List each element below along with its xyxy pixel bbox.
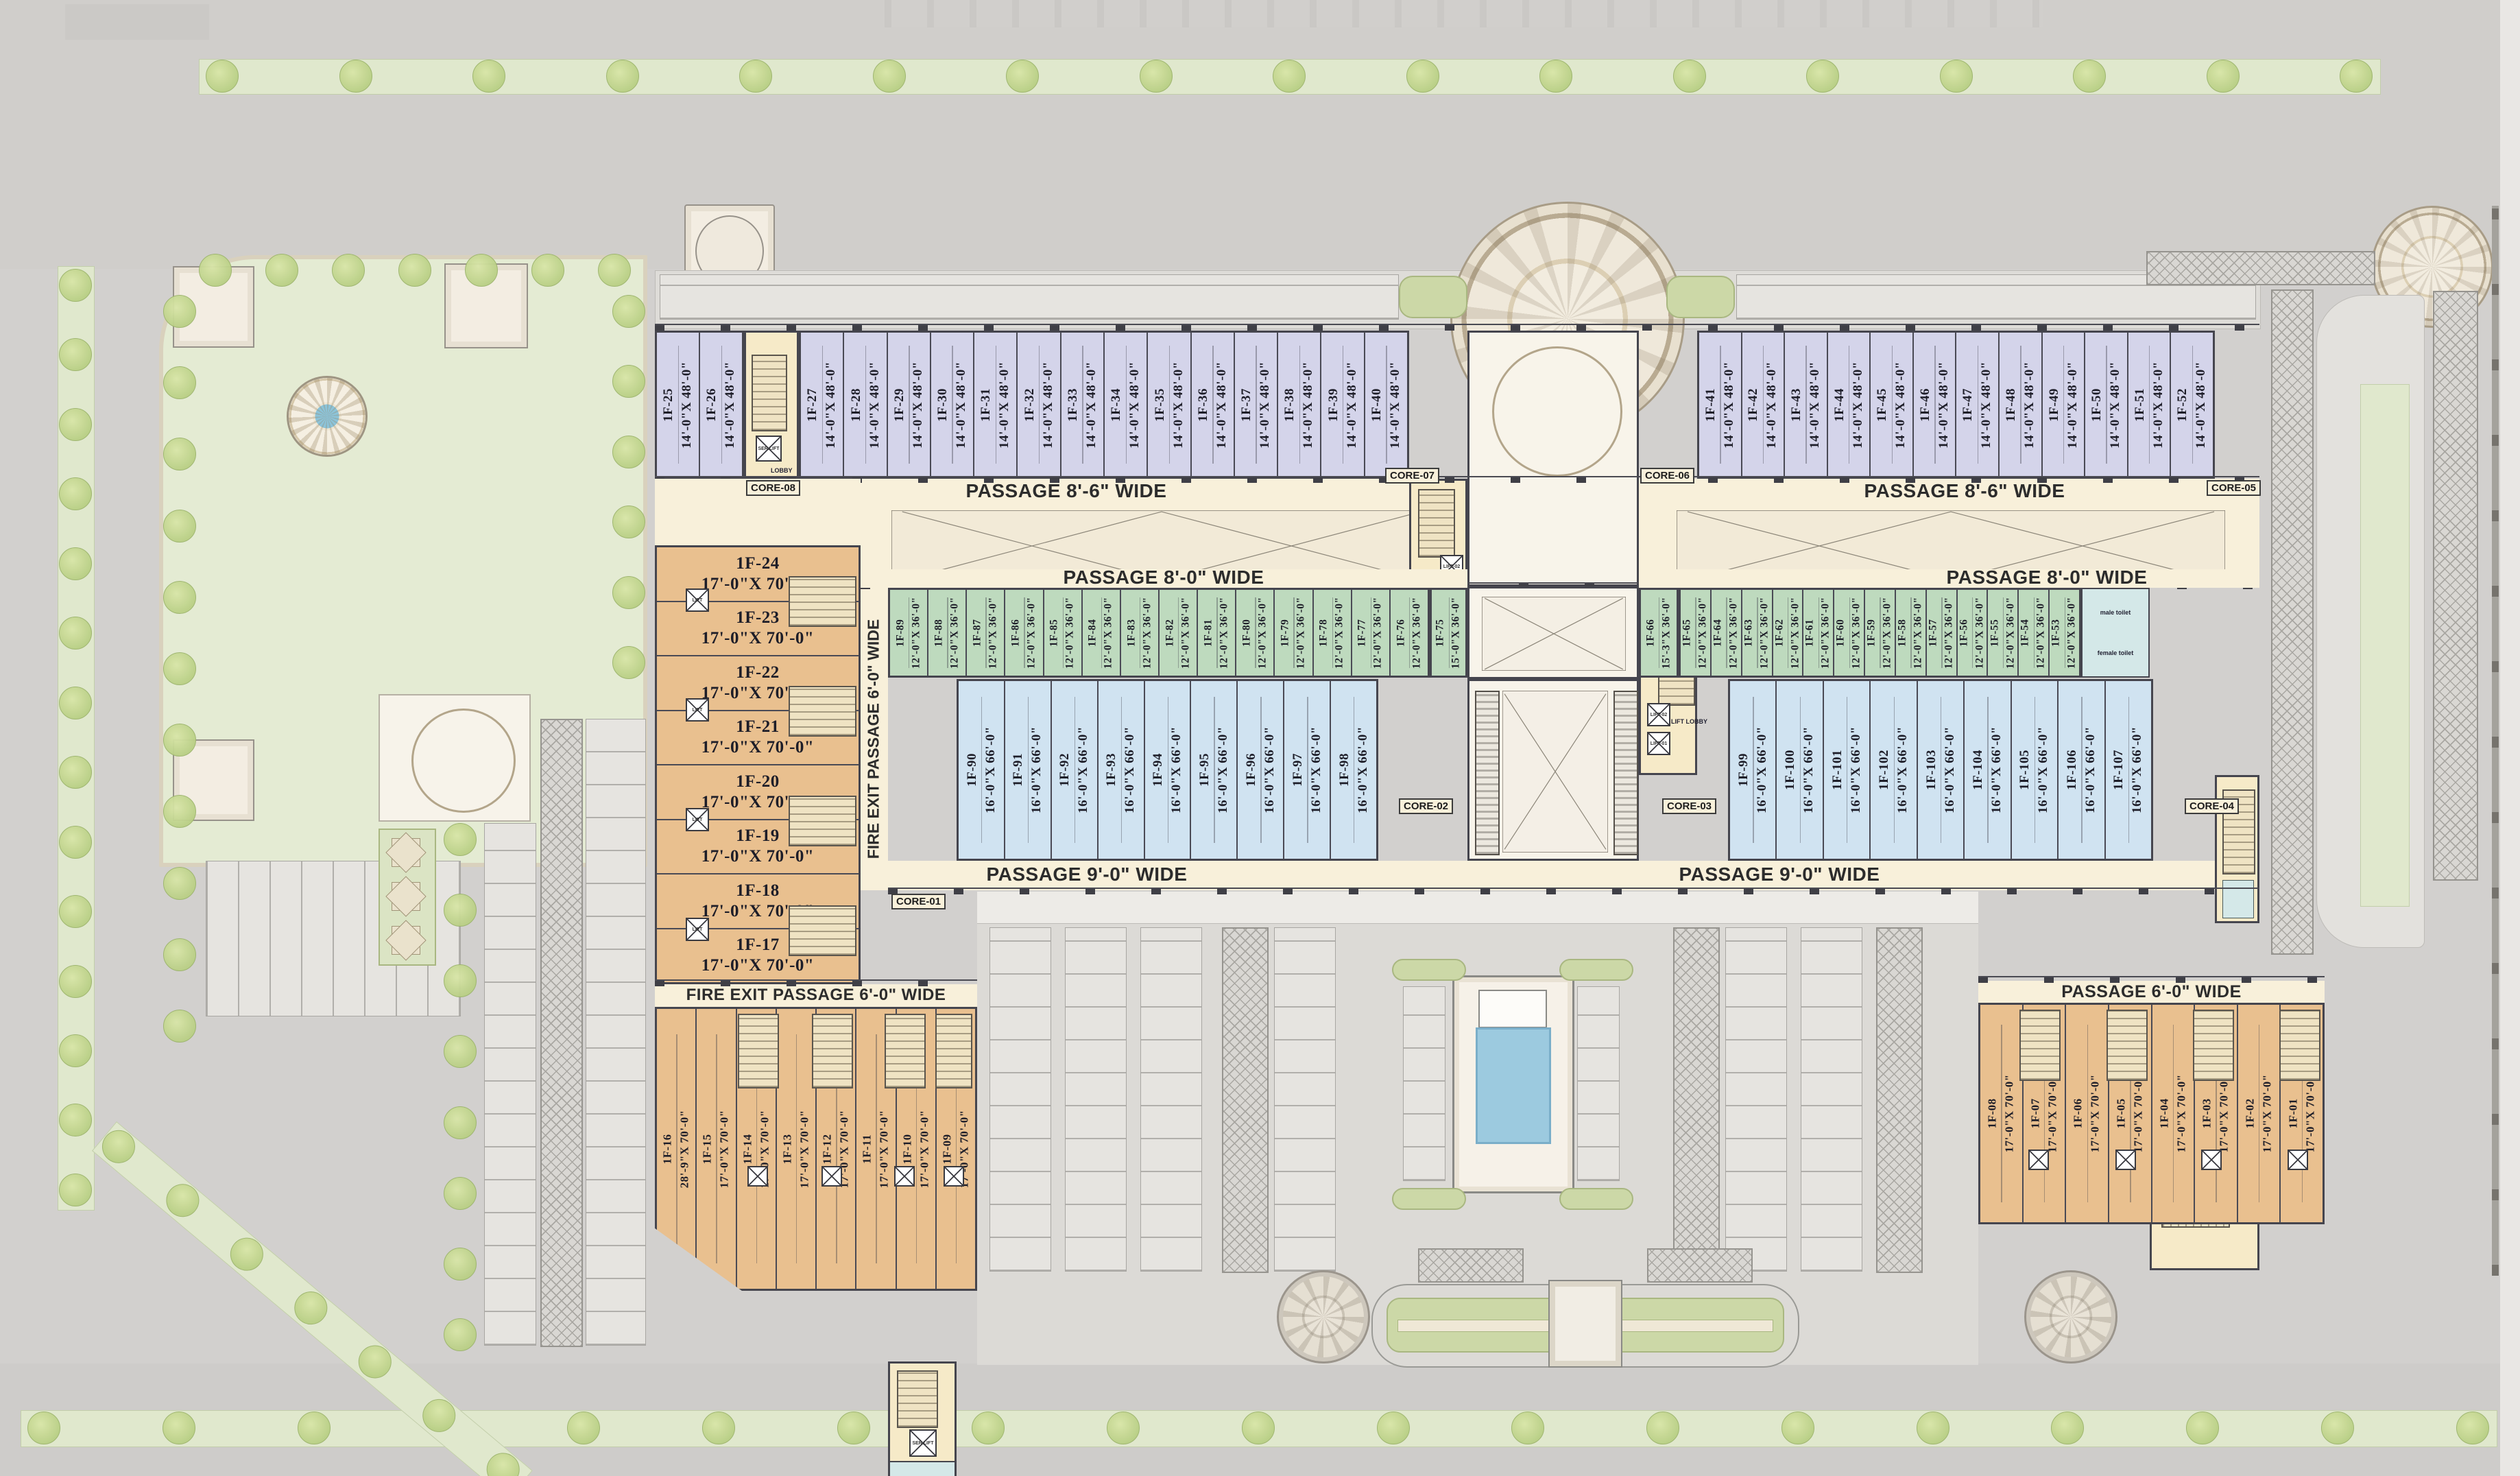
tree-icon [163, 510, 196, 543]
escalator-icon [1613, 691, 1638, 855]
central-void-lower [1467, 679, 1639, 861]
unit-1F-76: 1F-7612'-0"X 36'-0" [1389, 590, 1428, 676]
unit-1F-34: 1F-3414'-0"X 48'-0" [1103, 333, 1147, 477]
unit-1F-57: 1F-5712'-0"X 36'-0" [1925, 590, 1956, 676]
tree-row-north [206, 60, 2373, 92]
unit-1F-02: 1F-0217'-0"X 70'-0" [2237, 1005, 2280, 1222]
offsite-block [65, 4, 209, 40]
tree-icon [2073, 60, 2106, 93]
unit-1F-50: 1F-5014'-0"X 48'-0" [2084, 333, 2127, 477]
tree-icon [1940, 60, 1973, 93]
north-parking-faint [885, 0, 2043, 27]
parking-stalls-west [484, 823, 536, 1346]
unit-1F-100: 1F-10016'-0"X 66'-0" [1775, 681, 1822, 859]
passage-label: PASSAGE 8'-0" WIDE [1841, 568, 2253, 587]
wall-columns [655, 324, 2259, 331]
unit-1F-64: 1F-6412'-0"X 36'-0" [1710, 590, 1741, 676]
park-fountain [287, 376, 368, 457]
green-median [1392, 959, 1466, 981]
unit-1F-79: 1F-7912'-0"X 36'-0" [1273, 590, 1312, 676]
unit-1F-101: 1F-10116'-0"X 66'-0" [1823, 681, 1869, 859]
lobby-label: LOBBY [771, 467, 793, 474]
parking-stalls-plaza [1577, 986, 1620, 1181]
unit-1F-40: 1F-4014'-0"X 48'-0" [1364, 333, 1407, 477]
unit-1F-15: 1F-1517'-0"X 70'-0" [695, 1009, 735, 1289]
lift-icon: LIFT [686, 918, 709, 941]
unit-1F-25: 1F-2514'-0"X 48'-0" [657, 333, 699, 477]
site-east-margin [2500, 0, 2520, 1476]
parking-screen-east [2433, 291, 2478, 881]
roundabout-fountain [411, 709, 516, 813]
tree-icon [1406, 60, 1439, 93]
unit-1F-27: 1F-2714'-0"X 48'-0" [801, 333, 843, 477]
tree-icon [163, 1412, 195, 1444]
unit-1F-44: 1F-4414'-0"X 48'-0" [1827, 333, 1870, 477]
unit-1F-33: 1F-3314'-0"X 48'-0" [1060, 333, 1103, 477]
tree-icon [224, 1231, 270, 1278]
unit-1F-86: 1F-8612'-0"X 36'-0" [1004, 590, 1042, 676]
tree-icon [531, 254, 564, 287]
unit-1F-88: 1F-8812'-0"X 36'-0" [927, 590, 965, 676]
tree-icon [1673, 60, 1706, 93]
stair-icon [885, 1014, 926, 1088]
tree-icon [163, 295, 196, 328]
tree-icon [163, 795, 196, 828]
passage-label: PASSAGE 9'-0" WIDE [1574, 861, 1985, 888]
stage [1478, 990, 1547, 1028]
unit-1F-92: 1F-9216'-0"X 66'-0" [1051, 681, 1097, 859]
unit-1F-48: 1F-4814'-0"X 48'-0" [1998, 333, 2041, 477]
parking-stalls-court [1725, 927, 1787, 1272]
tree-icon [398, 254, 431, 287]
tree-icon [612, 295, 645, 328]
escalator-icon [1475, 691, 1500, 855]
shop-strip-blue-west: 1F-9016'-0"X 66'-0"1F-9116'-0"X 66'-0"1F… [957, 679, 1378, 861]
tree-icon [27, 1412, 60, 1444]
stair-icon [789, 796, 856, 846]
road-north [0, 0, 2520, 269]
parking-screen-northeast [2146, 251, 2375, 285]
shop-strip-green-66: 1F-6615'-3"X 36'-0" [1639, 588, 1679, 678]
fire-passage-vertical: FIRE EXIT PASSAGE 6'-0" WIDE [859, 588, 888, 890]
unit-1F-78: 1F-7812'-0"X 36'-0" [1312, 590, 1351, 676]
tree-icon [444, 1248, 477, 1281]
wall-columns [888, 888, 2259, 894]
unit-1F-98: 1F-9816'-0"X 66'-0" [1330, 681, 1376, 859]
passage-label: PASSAGE 6'-0" WIDE [1978, 981, 2325, 1002]
unit-1F-29: 1F-2914'-0"X 48'-0" [887, 333, 930, 477]
toilet-block-east: male toilet female toilet [2081, 588, 2150, 678]
tree-icon [1107, 1412, 1140, 1444]
lift-icon: LIFT-01 [1647, 732, 1670, 755]
tree-icon [2321, 1412, 2354, 1444]
tree-icon [1781, 1412, 1814, 1444]
unit-1F-61: 1F-6112'-0"X 36'-0" [1802, 590, 1833, 676]
stair-icon [812, 1014, 853, 1088]
unit-1F-04: 1F-0417'-0"X 70'-0" [2151, 1005, 2194, 1222]
unit-1F-103: 1F-10316'-0"X 66'-0" [1917, 681, 1963, 859]
tree-icon [332, 254, 365, 287]
tree-icon [163, 652, 196, 685]
unit-1F-13: 1F-1317'-0"X 70'-0" [776, 1009, 815, 1289]
pool [1476, 1027, 1551, 1144]
skylight-truss [1502, 691, 1608, 853]
passage-label: PASSAGE 8'-0" WIDE [958, 568, 1369, 587]
entry-median-walk [1397, 1320, 1555, 1332]
lift-icon: LIFT-02 [1647, 703, 1670, 726]
tree-icon [163, 1010, 196, 1043]
ornament-medallion [2024, 1270, 2117, 1364]
tree-icon [298, 1412, 331, 1444]
green-median [1392, 1188, 1466, 1210]
unit-1F-37: 1F-3714'-0"X 48'-0" [1234, 333, 1277, 477]
tree-icon [612, 365, 645, 398]
lift-icon [894, 1166, 915, 1187]
lift-icon [2288, 1150, 2308, 1170]
unit-1F-81: 1F-8112'-0"X 36'-0" [1197, 590, 1235, 676]
toilet-block [2222, 880, 2254, 918]
atrium-fountain [1492, 346, 1622, 477]
unit-1F-94: 1F-9416'-0"X 66'-0" [1144, 681, 1190, 859]
unit-1F-52: 1F-5214'-0"X 48'-0" [2170, 333, 2213, 477]
parking-stalls-court [1140, 927, 1202, 1272]
unit-1F-38: 1F-3814'-0"X 48'-0" [1277, 333, 1320, 477]
unit-1F-35: 1F-3514'-0"X 48'-0" [1147, 333, 1190, 477]
unit-1F-102: 1F-10216'-0"X 66'-0" [1869, 681, 1916, 859]
unit-1F-77: 1F-7712'-0"X 36'-0" [1351, 590, 1389, 676]
shop-strip-green-west: 1F-8912'-0"X 36'-0"1F-8812'-0"X 36'-0"1F… [888, 588, 1430, 678]
unit-1F-28: 1F-2814'-0"X 48'-0" [843, 333, 886, 477]
service-lift-icon: SER.LIFT [909, 1429, 937, 1457]
unit-1F-30: 1F-3014'-0"X 48'-0" [930, 333, 973, 477]
tree-icon [59, 1034, 92, 1067]
tree-icon [163, 366, 196, 399]
tree-row-median [442, 823, 478, 1351]
tree-icon [1511, 1412, 1544, 1444]
passage-label: PASSAGE 9'-0" WIDE [881, 861, 1293, 888]
ornament-medallion [1277, 1270, 1370, 1364]
tree-icon [606, 60, 639, 93]
stair-icon [2019, 1010, 2061, 1081]
unit-1F-105: 1F-10516'-0"X 66'-0" [2011, 681, 2057, 859]
unit-1F-107: 1F-10716'-0"X 66'-0" [2104, 681, 2151, 859]
tree-icon [59, 826, 92, 859]
tree-icon [59, 1174, 92, 1206]
unit-1F-26: 1F-2614'-0"X 48'-0" [699, 333, 742, 477]
unit-1F-43: 1F-4314'-0"X 48'-0" [1784, 333, 1827, 477]
passage-label: PASSAGE 8'-6" WIDE [861, 480, 1272, 502]
unit-1F-45: 1F-4514'-0"X 48'-0" [1869, 333, 1912, 477]
entry-gate [1548, 1280, 1622, 1368]
stair-icon [752, 355, 787, 431]
tree-icon [59, 338, 92, 371]
tree-icon [288, 1285, 335, 1331]
tree-icon [1806, 60, 1839, 93]
stair-icon [738, 1014, 779, 1088]
unit-1F-56: 1F-5612'-0"X 36'-0" [1956, 590, 1987, 676]
unit-1F-41: 1F-4114'-0"X 48'-0" [1699, 333, 1741, 477]
tree-icon [444, 1318, 477, 1351]
unit-1F-47: 1F-4714'-0"X 48'-0" [1955, 333, 1998, 477]
unit-1F-65: 1F-6512'-0"X 36'-0" [1681, 590, 1710, 676]
tree-icon [265, 254, 298, 287]
tree-row-south [27, 1412, 2489, 1444]
passage-label: PASSAGE 8'-6" WIDE [1759, 480, 2170, 502]
shop-strip-green-east: 1F-6512'-0"X 36'-0"1F-6412'-0"X 36'-0"1F… [1679, 588, 2081, 678]
parking-stalls-plaza [1403, 986, 1445, 1181]
tree-icon [199, 254, 232, 287]
shop-strip-purple-b: 1F-2714'-0"X 48'-0"1F-2814'-0"X 48'-0"1F… [799, 331, 1409, 479]
unit-1F-90: 1F-9016'-0"X 66'-0" [959, 681, 1004, 859]
skylight-truss [1482, 597, 1626, 671]
tree-icon [702, 1412, 735, 1444]
tree-icon [163, 938, 196, 971]
lift-icon [2115, 1150, 2136, 1170]
unit-1F-08: 1F-0817'-0"X 70'-0" [1980, 1005, 2022, 1222]
tree-icon [2456, 1412, 2489, 1444]
parking-screen-entry [1647, 1248, 1753, 1283]
lift-icon [2028, 1150, 2049, 1170]
unit-1F-32: 1F-3214'-0"X 48'-0" [1016, 333, 1059, 477]
unit-1F-66: 1F-6615'-3"X 36'-0" [1641, 590, 1677, 676]
unit-1F-54: 1F-5412'-0"X 36'-0" [2017, 590, 2048, 676]
parking-screen-court [1673, 927, 1720, 1273]
stair-icon [935, 1014, 972, 1088]
service-lift-icon: SER.LIFT [756, 436, 782, 462]
central-void-upper [1467, 586, 1639, 679]
tree-icon [160, 1177, 206, 1224]
unit-1F-99: 1F-9916'-0"X 66'-0" [1730, 681, 1775, 859]
green-median [1559, 1188, 1633, 1210]
tree-icon [612, 436, 645, 468]
tree-icon [2051, 1412, 2084, 1444]
unit-1F-82: 1F-8212'-0"X 36'-0" [1158, 590, 1197, 676]
lift-lobby-label: LIFT LOBBY [1671, 718, 1707, 725]
stair-icon [1418, 489, 1455, 558]
tree-icon [567, 1412, 600, 1444]
tree-icon [873, 60, 906, 93]
tree-row-park-west [165, 295, 195, 1043]
tree-icon [1006, 60, 1039, 93]
tree-icon [465, 254, 498, 287]
tree-icon [444, 1177, 477, 1210]
unit-1F-104: 1F-10416'-0"X 66'-0" [1963, 681, 2010, 859]
parking-stalls-west [586, 719, 646, 1346]
parking-stalls-court [1801, 927, 1862, 1272]
tree-icon [1273, 60, 1306, 93]
passage-label: FIRE EXIT PASSAGE 6'-0" WIDE [655, 985, 977, 1005]
tree-icon [59, 756, 92, 789]
boundary-wall-east [2492, 206, 2499, 1276]
unit-1F-51: 1F-5114'-0"X 48'-0" [2127, 333, 2170, 477]
unit-1F-106: 1F-10616'-0"X 66'-0" [2057, 681, 2104, 859]
tree-icon [59, 408, 92, 441]
unit-1F-75: 1F-7515'-0"X 36'-0" [1432, 590, 1465, 676]
unit-1F-63: 1F-6312'-0"X 36'-0" [1741, 590, 1772, 676]
tree-icon [59, 477, 92, 510]
tree-icon [612, 576, 645, 609]
tree-icon [59, 687, 92, 719]
tree-icon [2340, 60, 2373, 93]
tree-icon [444, 1035, 477, 1068]
tree-icon [163, 724, 196, 757]
unit-1F-36: 1F-3614'-0"X 48'-0" [1190, 333, 1234, 477]
tree-icon [59, 617, 92, 650]
unit-1F-96: 1F-9616'-0"X 66'-0" [1236, 681, 1283, 859]
parking-screen-east [2271, 289, 2314, 955]
core-label: CORE-02 [1399, 798, 1453, 814]
toilet-block-west: h.toilet M.TOILET F.TOILET [890, 1461, 955, 1476]
tree-icon [1242, 1412, 1275, 1444]
unit-1F-87: 1F-8712'-0"X 36'-0" [965, 590, 1004, 676]
tree-icon [1140, 60, 1173, 93]
green-verge-east [2360, 384, 2410, 907]
core-label: CORE-01 [891, 894, 946, 909]
entry-median [1605, 1298, 1784, 1353]
tree-icon [739, 60, 772, 93]
floor-plan-canvas: 1F-2514'-0"X 48'-0"1F-2614'-0"X 48'-0" S… [0, 0, 2520, 1476]
tree-icon [59, 547, 92, 580]
unit-1F-95: 1F-9516'-0"X 66'-0" [1190, 681, 1236, 859]
stair-icon [2193, 1010, 2234, 1081]
green-island [1399, 276, 1467, 318]
entry-median [1387, 1298, 1566, 1353]
tree-icon [1377, 1412, 1410, 1444]
green-island [1666, 276, 1735, 318]
stair-icon [897, 1370, 938, 1428]
south-walk [977, 892, 1978, 924]
tree-row-park-east [614, 295, 644, 679]
unit-1F-39: 1F-3914'-0"X 48'-0" [1320, 333, 1363, 477]
tree-icon [972, 1412, 1005, 1444]
stair-icon [789, 905, 856, 956]
unit-1F-80: 1F-8012'-0"X 36'-0" [1235, 590, 1273, 676]
shop-strip-green-75: 1F-7515'-0"X 36'-0" [1430, 588, 1467, 678]
unit-1F-42: 1F-4214'-0"X 48'-0" [1741, 333, 1784, 477]
lift-icon: LIFT [686, 588, 709, 612]
lift-icon: LIFT [686, 808, 709, 831]
stair-icon [2107, 1010, 2148, 1081]
tree-icon [612, 646, 645, 679]
wall-columns [1978, 976, 2325, 983]
unit-1F-49: 1F-4914'-0"X 48'-0" [2041, 333, 2085, 477]
tree-icon [163, 581, 196, 614]
north-atrium [1467, 331, 1639, 586]
tree-icon [1917, 1412, 1949, 1444]
tree-icon [59, 269, 92, 302]
shop-strip-blue-east: 1F-9916'-0"X 66'-0"1F-10016'-0"X 66'-0"1… [1728, 679, 2153, 861]
core-01-block: SER.LIFT h.toilet M.TOILET F.TOILET [888, 1361, 957, 1476]
unit-1F-16: 1F-1628'-9"X 70'-0" [657, 1009, 695, 1289]
tree-icon [2186, 1412, 2219, 1444]
unit-1F-53: 1F-5312'-0"X 36'-0" [2048, 590, 2079, 676]
core-label: CORE-05 [2207, 480, 2261, 496]
unit-1F-89: 1F-8912'-0"X 36'-0" [890, 590, 927, 676]
parking-stalls-north-left [660, 274, 1399, 320]
core-label: CORE-06 [1640, 468, 1694, 484]
green-median [1559, 959, 1633, 981]
unit-1F-62: 1F-6212'-0"X 36'-0" [1772, 590, 1803, 676]
parking-screen-court [1876, 927, 1923, 1273]
core-label: CORE-07 [1385, 468, 1439, 484]
lift-icon [821, 1166, 842, 1187]
tree-icon [2207, 60, 2240, 93]
unit-1F-59: 1F-5912'-0"X 36'-0" [1864, 590, 1895, 676]
female-toilet-label: female toilet [2098, 650, 2134, 656]
stair-icon [2279, 1010, 2320, 1081]
passage-label: FIRE EXIT PASSAGE 6'-0" WIDE [865, 619, 883, 859]
lift-icon [747, 1166, 768, 1187]
unit-1F-91: 1F-9116'-0"X 66'-0" [1004, 681, 1051, 859]
tree-icon [444, 964, 477, 997]
unit-1F-55: 1F-5512'-0"X 36'-0" [1987, 590, 2017, 676]
core-05-block [2215, 775, 2259, 923]
tree-icon [444, 823, 477, 856]
shop-strip-purple-c: 1F-4114'-0"X 48'-0"1F-4214'-0"X 48'-0"1F… [1697, 331, 2215, 479]
tree-icon [163, 867, 196, 900]
wall-columns [655, 979, 977, 986]
parking-stalls-court [989, 927, 1051, 1272]
parking-stalls-court [1274, 927, 1336, 1272]
core-08-block: SER.LIFT LOBBY [744, 331, 799, 479]
unit-1F-06: 1F-0617'-0"X 70'-0" [2065, 1005, 2108, 1222]
tree-icon [339, 60, 372, 93]
unit-1F-46: 1F-4614'-0"X 48'-0" [1912, 333, 1956, 477]
core-label: CORE-08 [746, 480, 800, 496]
tree-row-west [60, 269, 91, 1206]
tree-icon [206, 60, 239, 93]
lift-icon [944, 1166, 964, 1187]
tree-icon [163, 438, 196, 471]
stair-icon [789, 686, 856, 737]
lift-icon [2201, 1150, 2222, 1170]
unit-1F-84: 1F-8412'-0"X 36'-0" [1081, 590, 1120, 676]
parking-stalls-court [1065, 927, 1127, 1272]
unit-1F-31: 1F-3114'-0"X 48'-0" [973, 333, 1016, 477]
tree-icon [598, 254, 631, 287]
tree-icon [1539, 60, 1572, 93]
tree-icon [444, 1106, 477, 1139]
unit-1F-83: 1F-8312'-0"X 36'-0" [1120, 590, 1158, 676]
stair-icon [789, 576, 856, 627]
parking-screen-entry [1418, 1248, 1524, 1283]
core-label: CORE-03 [1662, 798, 1716, 814]
parking-screen-court [1222, 927, 1269, 1273]
unit-1F-93: 1F-9316'-0"X 66'-0" [1097, 681, 1144, 859]
entry-median-walk [1616, 1320, 1773, 1332]
tree-icon [837, 1412, 870, 1444]
core-label: CORE-04 [2185, 798, 2239, 814]
tree-icon [612, 505, 645, 538]
tree-icon [472, 60, 505, 93]
lift-icon: LIFT [686, 698, 709, 722]
parking-screen-west [540, 719, 583, 1347]
tree-icon [444, 894, 477, 927]
tree-icon [59, 1104, 92, 1136]
tree-icon [59, 965, 92, 998]
tree-icon [1646, 1412, 1679, 1444]
unit-1F-60: 1F-6012'-0"X 36'-0" [1833, 590, 1864, 676]
tree-icon [95, 1123, 142, 1170]
shop-strip-purple-a: 1F-2514'-0"X 48'-0"1F-2614'-0"X 48'-0" [655, 331, 744, 479]
unit-1F-58: 1F-5812'-0"X 36'-0" [1895, 590, 1925, 676]
male-toilet-label: male toilet [2100, 609, 2131, 616]
tree-row-park-north [199, 255, 631, 285]
unit-1F-97: 1F-9716'-0"X 66'-0" [1283, 681, 1330, 859]
unit-1F-85: 1F-8512'-0"X 36'-0" [1043, 590, 1081, 676]
star-planter-panel [379, 829, 436, 966]
tree-icon [59, 895, 92, 928]
